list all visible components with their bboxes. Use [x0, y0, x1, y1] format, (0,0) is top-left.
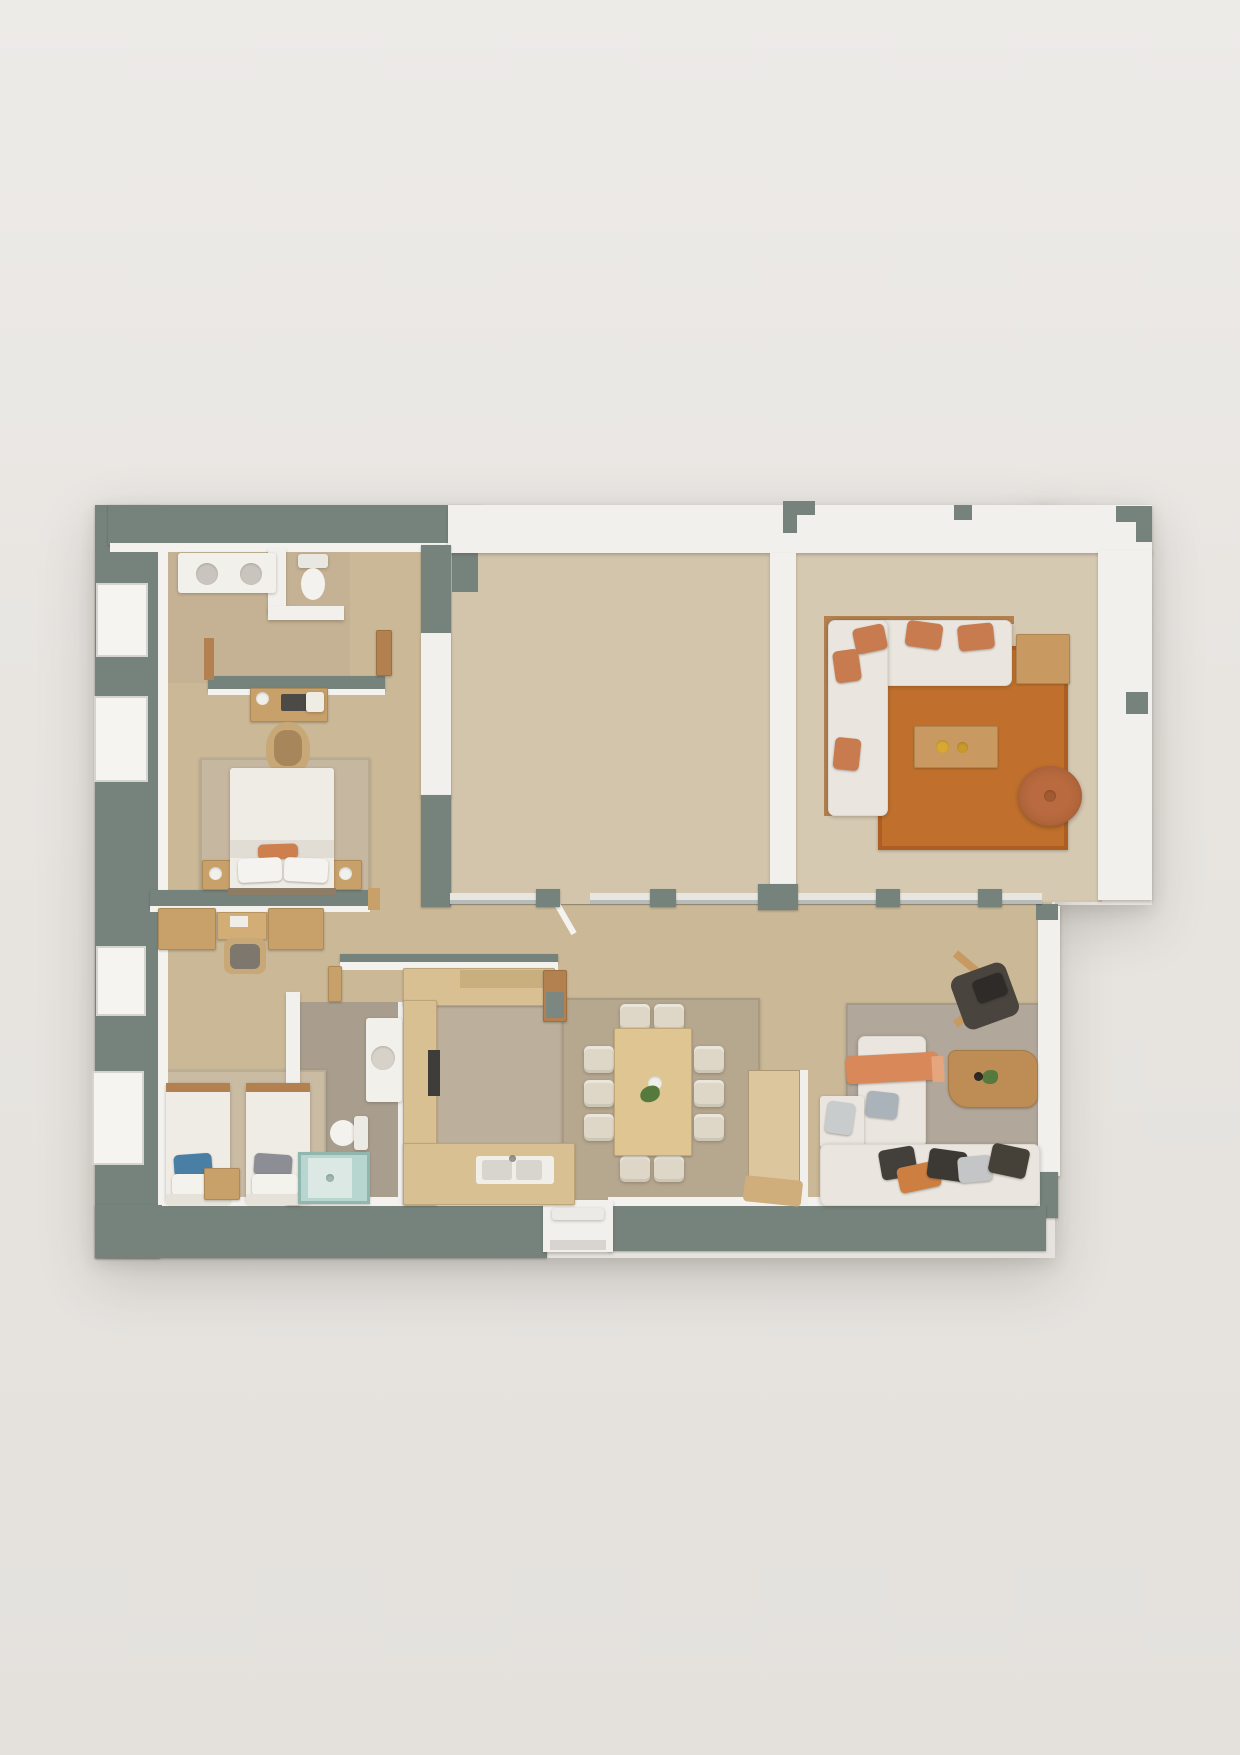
wall-spine-lower — [421, 795, 451, 907]
entry-step — [550, 1240, 606, 1250]
entry-door — [552, 1208, 604, 1220]
family-table-plant — [982, 1070, 998, 1084]
wardrobe-cabinet-1 — [158, 908, 216, 950]
living-coffee-table — [914, 726, 998, 768]
round-pouf-center — [1044, 790, 1056, 802]
window-bay-4 — [92, 1071, 144, 1165]
sink-ensuite-1 — [196, 563, 218, 585]
dining-chair-left-3 — [584, 1114, 614, 1141]
window-bay-2 — [94, 696, 148, 782]
partition-door-gap — [560, 893, 590, 904]
chair-bedroom2-cushion — [230, 944, 260, 969]
dining-chair-bottom-1 — [620, 1156, 650, 1182]
window-bay-3 — [96, 946, 146, 1016]
double-bed-headboard — [228, 888, 336, 895]
dining-chair-right-3 — [694, 1114, 724, 1141]
bedroom1-door-leaf — [368, 888, 380, 910]
nightstand-left-lamp — [209, 867, 222, 880]
wall-right-living — [1098, 550, 1152, 900]
twin-bed-a-footboard — [166, 1083, 230, 1092]
toilet-ensuite-bowl — [301, 568, 325, 600]
toilet-bathroom2-bowl — [330, 1120, 356, 1146]
desk-laptop — [281, 694, 307, 711]
living-bench — [1016, 634, 1070, 684]
pillar-cap-5 — [1036, 904, 1058, 920]
dining-chair-right-1 — [694, 1046, 724, 1073]
wall-hall-living-divider — [770, 553, 796, 895]
wall-spine-upper — [421, 545, 451, 633]
sectional-pillow-4 — [832, 648, 862, 683]
shower-drain — [326, 1174, 334, 1182]
chaise-pillow-gray — [865, 1090, 900, 1119]
sectional-pillow-3 — [957, 622, 996, 652]
desk-lamp — [256, 692, 269, 705]
chaise-throw-orange — [845, 1052, 938, 1085]
sink-ensuite-2 — [240, 563, 262, 585]
twin-bed-b-footboard — [246, 1083, 310, 1092]
dining-chair-bottom-2 — [654, 1156, 684, 1182]
window-bay-1 — [96, 583, 148, 657]
desk-papers — [306, 692, 324, 712]
family-sofa-arm-pillow — [824, 1100, 856, 1136]
twin-bed-b-pillow-white — [252, 1174, 298, 1196]
wall-right-lower — [1038, 906, 1060, 1176]
double-bed-pillow-right — [283, 857, 328, 883]
staircase — [748, 1070, 800, 1182]
dining-chair-top-1 — [620, 1004, 650, 1030]
wall-spine-mid — [421, 633, 451, 797]
desk-chair-cushion — [274, 730, 302, 766]
kitchen-sink-basin-1 — [482, 1160, 512, 1180]
wall-ensuite-horiz — [268, 606, 344, 620]
coffee-table-bowl-1 — [936, 740, 949, 753]
floor-plan — [0, 0, 1240, 1755]
wardrobe-cabinet-2 — [268, 908, 324, 950]
wall-shelf-wood — [328, 966, 342, 1002]
toilet-bathroom2-tank — [354, 1116, 368, 1150]
toilet-ensuite-tank — [298, 554, 328, 568]
floor-hallway — [452, 545, 772, 903]
kitchen-tall-unit-front — [546, 992, 564, 1018]
partition-post-5 — [978, 889, 1002, 907]
family-table-cup — [974, 1072, 983, 1081]
closet-rod — [376, 630, 392, 676]
nightstand-between-beds — [204, 1168, 240, 1200]
kitchen-faucet — [509, 1155, 516, 1162]
floor-kitchen — [437, 1002, 565, 1152]
pillar-cap-4 — [1126, 692, 1148, 714]
kitchen-oven — [428, 1050, 440, 1096]
partition-post-2 — [650, 889, 676, 907]
double-bed-pillow-left — [237, 857, 282, 883]
desk-bedroom2-item — [230, 916, 248, 927]
dining-chair-left-1 — [584, 1046, 614, 1073]
kitchen-sink-basin-2 — [516, 1160, 542, 1180]
dining-chair-top-2 — [654, 1004, 684, 1030]
wall-bottom-right — [608, 1205, 1046, 1251]
sectional-pillow-2 — [904, 620, 943, 651]
partition-post-4 — [876, 889, 900, 907]
closet-door-leaf — [204, 638, 214, 680]
sink-bathroom2 — [371, 1046, 395, 1070]
pillar-cap-3b — [1136, 506, 1152, 542]
dining-chair-left-2 — [584, 1080, 614, 1107]
pillar-cap-1b — [783, 501, 797, 533]
partition-post-1 — [536, 889, 560, 907]
dining-chair-right-2 — [694, 1080, 724, 1107]
nightstand-right-lamp — [339, 867, 352, 880]
coffee-table-bowl-2 — [957, 742, 968, 753]
chaise-throw-fringe — [931, 1056, 944, 1083]
sectional-pillow-5 — [832, 737, 861, 772]
pillar-cap-2 — [954, 505, 972, 520]
partition-post-3 — [758, 884, 798, 910]
wall-bottom-left — [95, 1205, 547, 1258]
kitchen-upper-cabinet — [460, 970, 555, 988]
wall-top-gray — [108, 505, 482, 545]
